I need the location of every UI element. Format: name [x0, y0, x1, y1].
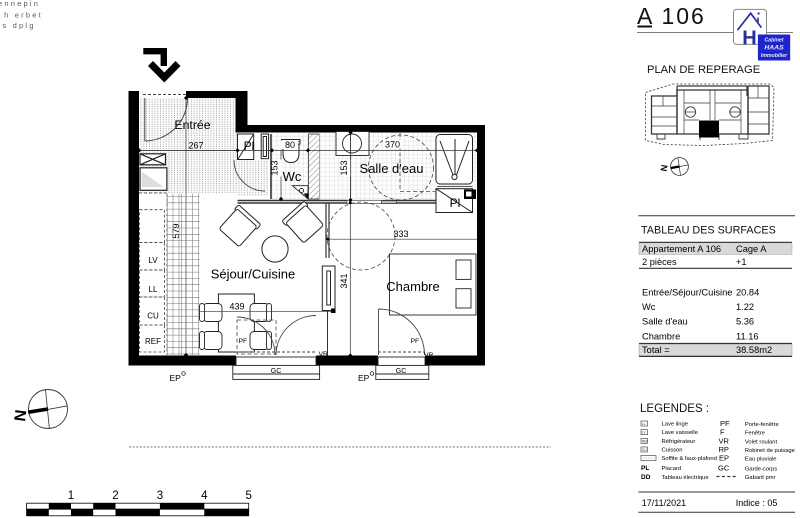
- svg-text:A 106: A 106: [637, 3, 706, 29]
- svg-text:PF: PF: [720, 419, 730, 428]
- svg-text:EP: EP: [170, 373, 182, 383]
- svg-text:20.84: 20.84: [736, 288, 759, 298]
- svg-text:Séjour/Cuisine: Séjour/Cuisine: [211, 267, 296, 282]
- svg-text:GC: GC: [718, 463, 730, 472]
- svg-text:REF: REF: [642, 439, 648, 443]
- svg-text:PF: PF: [239, 338, 248, 345]
- svg-text:370: 370: [385, 140, 400, 150]
- svg-text:Cage A: Cage A: [736, 244, 767, 254]
- svg-text:LV: LV: [148, 256, 158, 265]
- svg-text:CU: CU: [147, 312, 159, 321]
- svg-text:Gabarit pmr: Gabarit pmr: [745, 475, 776, 481]
- svg-text:Tableau électrique: Tableau électrique: [662, 475, 709, 481]
- svg-text:es dplg: es dplg: [0, 21, 36, 30]
- svg-text:+1: +1: [736, 257, 747, 267]
- svg-text:REF: REF: [145, 337, 161, 346]
- svg-text:PF: PF: [411, 338, 420, 345]
- svg-text:Indice : 05: Indice : 05: [736, 498, 778, 508]
- svg-text:LL: LL: [149, 285, 158, 294]
- svg-text:Cuisson: Cuisson: [662, 448, 683, 454]
- svg-text:341: 341: [339, 273, 349, 288]
- svg-text:80: 80: [285, 140, 295, 150]
- svg-text:Placard: Placard: [662, 466, 682, 472]
- svg-text:38.58m2: 38.58m2: [736, 345, 772, 355]
- svg-text:Wc: Wc: [283, 169, 302, 184]
- svg-text:CU: CU: [642, 448, 647, 452]
- svg-text:EP: EP: [358, 373, 370, 383]
- svg-text:Immobilier: Immobilier: [761, 53, 788, 59]
- svg-text:153: 153: [270, 160, 280, 175]
- svg-text:5: 5: [245, 490, 251, 502]
- svg-text:4: 4: [201, 490, 208, 502]
- svg-text:Entrée/Séjour/Cuisine: Entrée/Séjour/Cuisine: [642, 288, 732, 298]
- svg-text:VR: VR: [719, 436, 730, 445]
- svg-text:Eau pluviale: Eau pluviale: [745, 457, 777, 463]
- svg-text:Cabinet: Cabinet: [764, 38, 783, 44]
- svg-text:Pl: Pl: [450, 196, 461, 210]
- svg-text:Chambre: Chambre: [642, 332, 680, 342]
- svg-text:Soffite & faux-plafond: Soffite & faux-plafond: [662, 456, 717, 462]
- svg-text:Lave linge: Lave linge: [662, 422, 688, 428]
- svg-text:Pl: Pl: [244, 139, 255, 153]
- svg-text:N: N: [659, 164, 670, 172]
- svg-text:l h erbet: l h erbet: [0, 11, 43, 20]
- svg-text:Appartement A 106: Appartement A 106: [642, 244, 721, 254]
- svg-text:Porte-fenêtre: Porte-fenêtre: [745, 422, 779, 428]
- svg-text:579: 579: [171, 223, 181, 238]
- svg-text:EP: EP: [719, 454, 729, 463]
- svg-text:5.36: 5.36: [736, 317, 754, 327]
- svg-text:267: 267: [188, 141, 203, 151]
- svg-text:2: 2: [112, 490, 118, 502]
- svg-text:Salle d'eau: Salle d'eau: [642, 317, 688, 327]
- svg-text:LEGENDES :: LEGENDES :: [640, 403, 709, 415]
- svg-text:17/11/2021: 17/11/2021: [642, 498, 686, 508]
- svg-text:VR: VR: [424, 352, 434, 359]
- svg-text:Volet roulant: Volet roulant: [745, 439, 778, 445]
- svg-text:11.16: 11.16: [736, 332, 759, 342]
- svg-text:VR: VR: [319, 351, 329, 358]
- svg-text:Réfrigérateur: Réfrigérateur: [662, 439, 696, 445]
- svg-text:HAAS: HAAS: [764, 45, 784, 52]
- svg-text:LV: LV: [642, 431, 647, 435]
- svg-text:PL: PL: [641, 465, 649, 472]
- svg-text:GC: GC: [271, 368, 282, 375]
- svg-text:GC: GC: [396, 368, 407, 375]
- svg-text:Garde-corps: Garde-corps: [745, 466, 777, 472]
- svg-text:N: N: [10, 409, 28, 423]
- svg-text:2 pièces: 2 pièces: [642, 257, 677, 267]
- svg-text:Total =: Total =: [642, 345, 670, 355]
- svg-text:439: 439: [229, 302, 244, 312]
- svg-text:Robinet de puisage: Robinet de puisage: [745, 448, 795, 454]
- svg-text:Wc: Wc: [642, 302, 656, 312]
- svg-text:Lave vaisselle: Lave vaisselle: [662, 430, 698, 436]
- svg-text:ennepin: ennepin: [0, 0, 40, 8]
- svg-text:PLAN DE REPERAGE: PLAN DE REPERAGE: [647, 64, 760, 76]
- svg-text:LL: LL: [642, 422, 646, 426]
- svg-text:Fenêtre: Fenêtre: [745, 431, 765, 437]
- svg-text:H: H: [742, 28, 756, 50]
- svg-text:1: 1: [68, 490, 74, 502]
- svg-text:153: 153: [339, 160, 349, 175]
- svg-text:1.22: 1.22: [736, 302, 754, 312]
- svg-text:Chambre: Chambre: [386, 279, 439, 294]
- svg-text:333: 333: [393, 229, 408, 239]
- svg-text:Entrée: Entrée: [174, 118, 210, 132]
- svg-text:TABLEAU DES SURFACES: TABLEAU DES SURFACES: [641, 225, 776, 237]
- svg-text:3: 3: [157, 490, 163, 502]
- svg-text:DD: DD: [641, 474, 651, 481]
